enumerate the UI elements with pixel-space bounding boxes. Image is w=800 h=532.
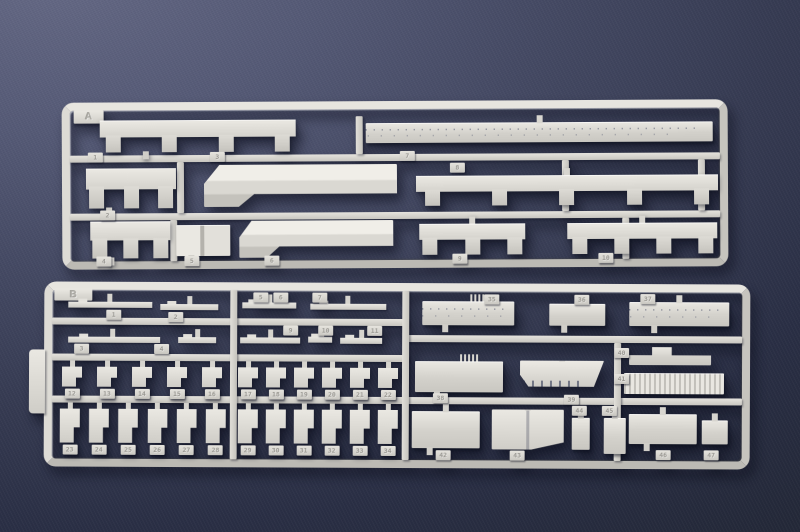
sprue-a-letter: A [85,112,92,123]
part-tag: 21 [352,390,367,400]
bracket-part: 32 [322,404,342,456]
part-tag: 34 [380,446,395,456]
part-tag-a2: 2 [100,210,115,220]
part-b38-superstructure [415,361,503,392]
bracket-part: 13 [97,361,117,399]
part-b43-hangar-box [492,409,564,449]
part-tag: 18 [268,389,283,399]
part-tag: 16 [204,389,219,399]
part-b37-superstructure-strip [629,302,729,326]
bracket-part: 18 [266,361,286,399]
sprue-a-runner-v1 [356,116,363,154]
part-b-strip-m4 [308,337,332,343]
part-tag-b37: 37 [640,294,655,304]
part-tag-b-l2: 2 [168,312,183,322]
part-tag: 17 [240,389,255,399]
part-b36-deckhouse-strip [549,304,605,326]
bracket-part: 27 [176,403,196,455]
bracket-part: 24 [89,403,109,455]
part-tag-b40: 40 [614,348,629,358]
part-a10-bulkhead [567,222,717,254]
part-tag-b47: 47 [704,450,719,460]
sprue-b-runner-v1 [230,290,238,459]
part-tag: 19 [296,390,311,400]
part-tag: 27 [179,445,194,455]
part-tag-b46: 46 [656,450,671,460]
notch-teeth [572,237,713,254]
part-tag: 24 [91,445,106,455]
part-tag: 31 [296,446,311,456]
part-tag-b-m2: 6 [273,292,288,302]
part-tag-b-l1: 1 [106,310,121,320]
sprue-b: B 1 2 3 4 5 6 7 9 10 11 12 [44,281,751,469]
part-tag-b-l4: 4 [154,344,169,354]
part-b-strip-l1 [68,302,152,308]
bracket-part: 21 [350,362,370,400]
part-tag: 29 [240,445,255,455]
part-a8-long-bulkhead [416,174,718,206]
part-tag-a7: 7 [400,151,415,161]
bracket-part: 34 [378,404,398,456]
notch-teeth [422,238,522,255]
sprue-a-runner-v2 [177,162,184,213]
part-a7-long-deck-strip [366,121,713,143]
part-a1-hull-bulkhead [100,120,296,153]
part-a5-deckhouse-boxes [176,225,230,256]
bracket-part: 19 [294,362,314,400]
part-tag-a10: 10 [598,253,613,263]
part-tag: 33 [352,446,367,456]
part-tag: 25 [121,445,136,455]
bracket-part: 33 [350,404,370,456]
part-a2-bulkhead [86,168,176,208]
part-tag: 13 [99,389,114,399]
bracket-part: 22 [378,362,398,400]
part-tag-b-m4: 9 [283,326,298,336]
part-tag-b-l3: 3 [74,344,89,354]
part-b-strip-m2 [310,304,386,310]
part-tag-b-m5: 10 [318,326,333,336]
part-b42-hangar-box [412,411,480,448]
part-tag-b41: 41 [614,374,629,384]
bracket-part: 31 [294,404,314,456]
sprue-b-letter: B [70,289,77,300]
bracket-row-4-left: 23 24 25 26 27 28 [60,403,226,456]
part-tag-b42: 42 [436,450,451,460]
bracket-row-3-mid: 17 18 19 20 21 22 [238,361,398,400]
part-tag-b-m1: 5 [253,292,268,302]
bracket-part: 30 [266,403,286,455]
part-tag: 28 [208,445,223,455]
sprue-a: A [62,99,729,269]
part-b39-sponson [520,361,604,387]
sprue-b-runner-h4 [402,335,742,343]
notch-teeth [93,238,168,258]
part-b-strip-l3 [68,337,160,343]
bracket-row-4-mid: 29 30 31 32 33 34 [238,403,398,456]
part-b-strip-m3 [240,337,300,343]
part-b-strip-l2 [160,304,218,310]
part-tag: 26 [150,445,165,455]
part-tag: 32 [324,446,339,456]
bracket-part: 16 [202,361,222,399]
part-tag: 14 [134,389,149,399]
bracket-part: 15 [167,361,187,399]
part-tag-b45: 45 [602,406,617,416]
part-b47-small-box [702,420,728,444]
part-b45-small-pillar [604,418,626,454]
bracket-part: 25 [118,403,138,455]
part-tag-a4: 4 [96,256,111,266]
part-tag-b44: 44 [572,406,587,416]
notch-teeth [106,134,290,152]
part-tag-a5: 5 [184,256,199,266]
part-tag-b36: 36 [574,295,589,305]
part-tag-a8: 8 [450,163,465,173]
part-tag-b38: 38 [433,393,448,403]
bracket-part: 20 [322,362,342,400]
part-a9-bulkhead [419,223,525,255]
part-tag-b35: 35 [484,294,499,304]
bracket-part: 29 [238,403,258,455]
notch-teeth [89,187,174,209]
part-b44-small-pillar [572,418,590,450]
part-tag-b-m3: 7 [312,293,327,303]
part-tag: 20 [324,390,339,400]
part-a4-bulkhead [90,221,170,258]
bracket-part: 14 [132,361,152,399]
part-tag-a3: 3 [210,152,225,162]
bracket-part: 28 [206,403,226,455]
part-b41-ribbed-girder [624,373,724,394]
part-tag: 30 [268,445,283,455]
part-b-strip-m1 [242,302,296,308]
sprue-b-runner-v2 [402,291,410,460]
part-tag-b-m6: 11 [367,326,382,336]
photo-stage: A [0,0,800,532]
part-b35-superstructure-strip [422,301,514,325]
sprue-b-side-tab [29,349,45,413]
part-tag: 15 [169,389,184,399]
part-tag-a6: 6 [264,256,279,266]
part-b46-deck-box [629,414,697,444]
part-b-strip-m5 [340,338,382,344]
part-b-strip-l4 [178,337,216,343]
part-tag-a9: 9 [452,254,467,264]
part-tag-a1: 1 [88,153,103,163]
part-tag-b39: 39 [564,395,579,405]
bracket-row-3-left: 12 13 14 15 16 [62,361,222,400]
bracket-part: 12 [62,361,82,399]
part-tag: 23 [62,445,77,455]
part-tag-b43: 43 [510,450,525,460]
notch-teeth [425,188,709,206]
bracket-part: 23 [60,403,80,455]
bracket-part: 17 [238,361,258,399]
part-tag: 22 [380,390,395,400]
part-tag: 12 [64,389,79,399]
bracket-part: 26 [147,403,167,455]
